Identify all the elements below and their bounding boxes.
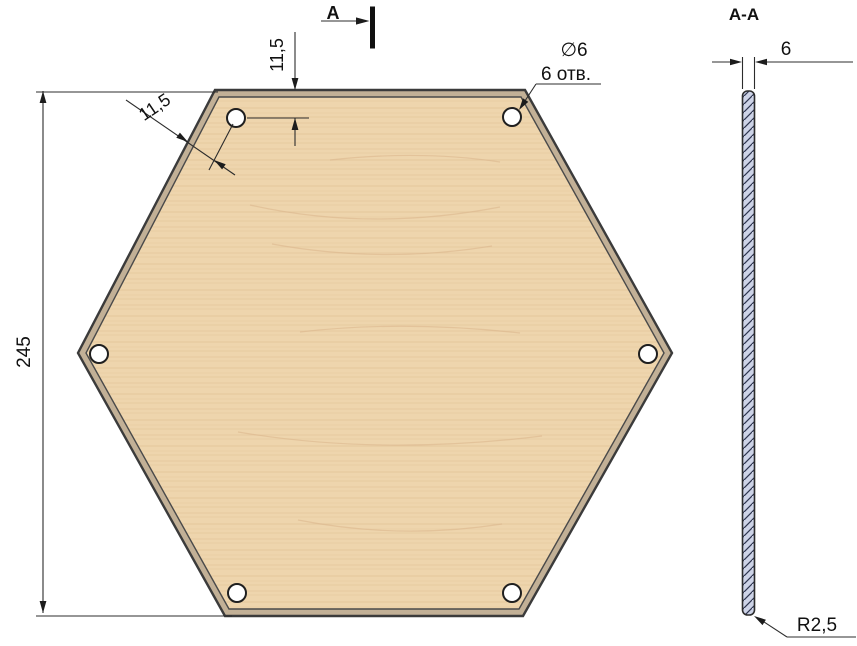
drawing-canvas: A 245 11,5 11,5 ∅6 6 отв.: [0, 0, 857, 646]
dimension-arrow: [40, 601, 47, 613]
dimension-value-thickness: 6: [781, 39, 792, 60]
dimension-arrow: [292, 78, 299, 90]
dimension-arrow: [176, 133, 188, 142]
dimension-value-11-5-top: 11,5: [267, 38, 287, 72]
section-strip: [743, 91, 755, 615]
dimension-value-245: 245: [14, 336, 35, 368]
mounting-hole: [90, 345, 108, 363]
section-arrow-head: [356, 17, 370, 24]
mounting-hole: [227, 109, 245, 127]
dimension-arrow: [730, 59, 742, 65]
drawing-sheet: A 245 11,5 11,5 ∅6 6 отв.: [0, 0, 857, 646]
section-view-title: A-A: [729, 5, 759, 24]
dimension-arrow: [40, 91, 47, 103]
section-cut-marker: A: [321, 3, 375, 49]
leader-arrow: [754, 616, 766, 625]
hole-diameter-label: ∅6: [560, 40, 587, 61]
mounting-hole: [228, 584, 246, 602]
mounting-hole: [503, 584, 521, 602]
section-view: A-A 6 R2,5: [712, 5, 856, 637]
hole-count-label: 6 отв.: [541, 64, 591, 85]
edge-radius-label: R2,5: [797, 615, 837, 636]
mounting-hole: [503, 108, 521, 126]
section-plane-bar: [370, 7, 375, 49]
mounting-hole: [639, 345, 657, 363]
plan-view: [78, 90, 672, 616]
section-letter-label: A: [327, 3, 340, 23]
dimension-arrow: [755, 59, 767, 65]
